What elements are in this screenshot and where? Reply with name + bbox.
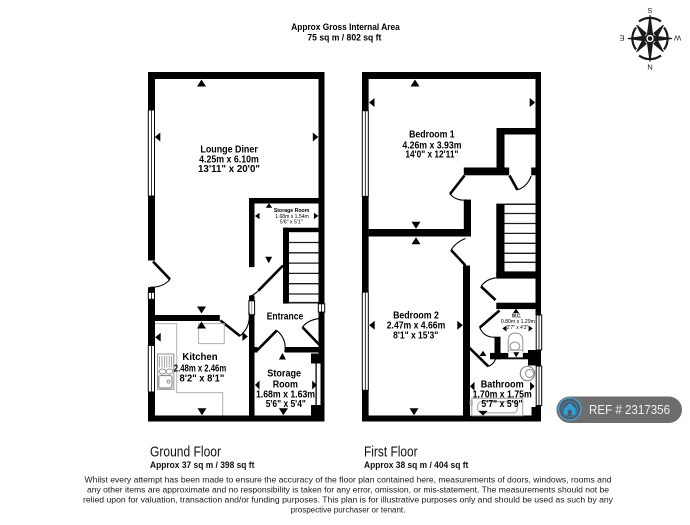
- svg-text:S: S: [647, 6, 652, 15]
- svg-text:Approx 38 sq m / 404 sq ft: Approx 38 sq m / 404 sq ft: [364, 460, 469, 471]
- svg-text:14'0" x 12'11": 14'0" x 12'11": [405, 149, 458, 161]
- svg-text:Entrance: Entrance: [267, 312, 304, 323]
- svg-text:Approx 37 sq m / 398 sq ft: Approx 37 sq m / 398 sq ft: [150, 460, 255, 471]
- svg-text:E: E: [619, 34, 624, 43]
- svg-text:N: N: [647, 62, 652, 71]
- svg-text:Storage Room: Storage Room: [274, 208, 310, 214]
- svg-text:any other items are approximat: any other items are approximate and no r…: [87, 486, 610, 495]
- svg-text:relied upon for valuation, tra: relied upon for valuation, transaction a…: [83, 496, 613, 505]
- svg-text:75 sq m / 802 sq ft: 75 sq m / 802 sq ft: [307, 32, 382, 43]
- svg-text:5'6" x 5'1": 5'6" x 5'1": [280, 219, 303, 225]
- svg-text:prospective purchaser or tenan: prospective purchaser or tenant.: [291, 506, 406, 515]
- svg-text:13'11" x 20'0": 13'11" x 20'0": [198, 163, 260, 175]
- svg-text:8'2" x 8'1": 8'2" x 8'1": [180, 372, 225, 384]
- svg-text:5'7" x 5'9": 5'7" x 5'9": [481, 398, 522, 410]
- svg-text:2'7" x 4'3": 2'7" x 4'3": [507, 325, 529, 331]
- svg-text:Whilst every attempt has been: Whilst every attempt has been made to en…: [85, 476, 612, 485]
- svg-text:5'6" x 5'4": 5'6" x 5'4": [266, 398, 306, 410]
- svg-text:W: W: [673, 34, 681, 43]
- svg-text:8'1" x 15'3": 8'1" x 15'3": [393, 330, 438, 342]
- svg-text:Kitchen: Kitchen: [182, 351, 217, 363]
- svg-text:Ground Floor: Ground Floor: [150, 443, 221, 460]
- svg-text:REF # 2317356: REF # 2317356: [589, 403, 670, 417]
- svg-text:First Floor: First Floor: [364, 443, 418, 460]
